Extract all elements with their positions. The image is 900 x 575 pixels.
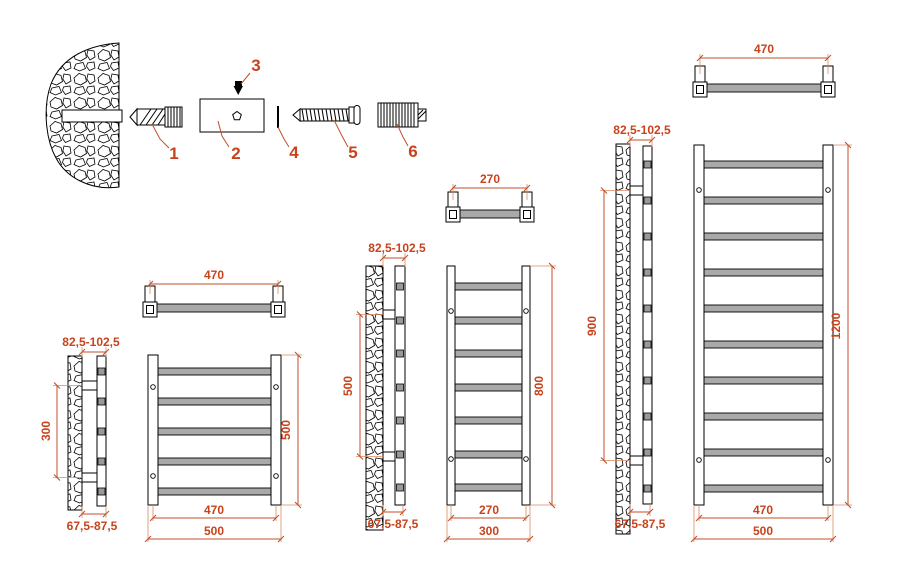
- dim-medium-overall-width: 300: [479, 524, 499, 538]
- dim-medium-rail-width: 270: [479, 503, 499, 517]
- medium-front-view: [447, 266, 530, 505]
- part-label-5: 5: [348, 143, 357, 162]
- mounting-plate: [200, 99, 264, 132]
- embedded-anchor-bar: [62, 110, 122, 122]
- dim-top-view-small: 470: [204, 268, 224, 282]
- leader-lines: [152, 73, 408, 148]
- large-model: 82,5-102,5 900 67,5-87,5 1200 470 500: [585, 123, 852, 542]
- dim-small-rail-width: 470: [204, 503, 224, 517]
- wall-cross-section: [46, 43, 122, 188]
- dim-small-wall-gap-top: 82,5-102,5: [62, 335, 120, 349]
- anchor-sleeve: [378, 103, 426, 127]
- large-side-view: [616, 144, 652, 534]
- drawing-canvas: 1 2 3 4 5 6 470 270: [0, 0, 900, 575]
- dim-large-wall-gap-top: 82,5-102,5: [613, 123, 671, 137]
- part-label-3: 3: [251, 56, 260, 75]
- dim-large-overall-width: 500: [753, 524, 773, 538]
- dim-medium-height: 800: [532, 376, 546, 396]
- top-view-medium-rail: 270: [446, 172, 534, 222]
- fixing-screw: [293, 106, 360, 125]
- dim-medium-wall-gap-bottom: 67,5-87,5: [368, 517, 419, 531]
- dim-large-wall-gap-bottom: 67,5-87,5: [615, 517, 666, 531]
- medium-model: 82,5-102,5 500 67,5-87,5 800 270 300: [341, 241, 556, 542]
- small-model: 82,5-102,5 300 67,5-87,5 500 470 500: [39, 335, 302, 542]
- part-label-6: 6: [408, 142, 417, 161]
- dim-medium-bracket-span: 500: [341, 376, 355, 396]
- dim-small-overall-width: 500: [204, 524, 224, 538]
- small-front-view: [148, 355, 281, 505]
- part-label-4: 4: [289, 143, 299, 162]
- part-label-1: 1: [169, 144, 178, 163]
- technical-drawing: 1 2 3 4 5 6 470 270: [0, 0, 900, 575]
- part-label-2: 2: [231, 144, 240, 163]
- top-view-small-rail: 470: [143, 268, 285, 317]
- dim-large-bracket-span: 900: [585, 316, 599, 336]
- dim-large-height: 1200: [829, 312, 843, 339]
- dim-large-rail-width: 470: [753, 503, 773, 517]
- expansion-plug: [130, 107, 182, 127]
- dim-small-wall-gap-bottom: 67,5-87,5: [67, 519, 118, 533]
- large-front-view: [694, 145, 833, 505]
- dim-top-view-medium: 270: [480, 172, 500, 186]
- dim-medium-wall-gap-top: 82,5-102,5: [368, 241, 426, 255]
- dim-small-height: 500: [279, 420, 293, 440]
- top-view-large-rail: 470: [693, 42, 835, 97]
- small-side-view: [68, 356, 106, 510]
- dim-top-view-large: 470: [754, 42, 774, 56]
- medium-side-view: [366, 266, 405, 530]
- dim-small-bracket-span: 300: [39, 421, 53, 441]
- mounting-kit: 1 2 3 4 5 6: [130, 56, 426, 163]
